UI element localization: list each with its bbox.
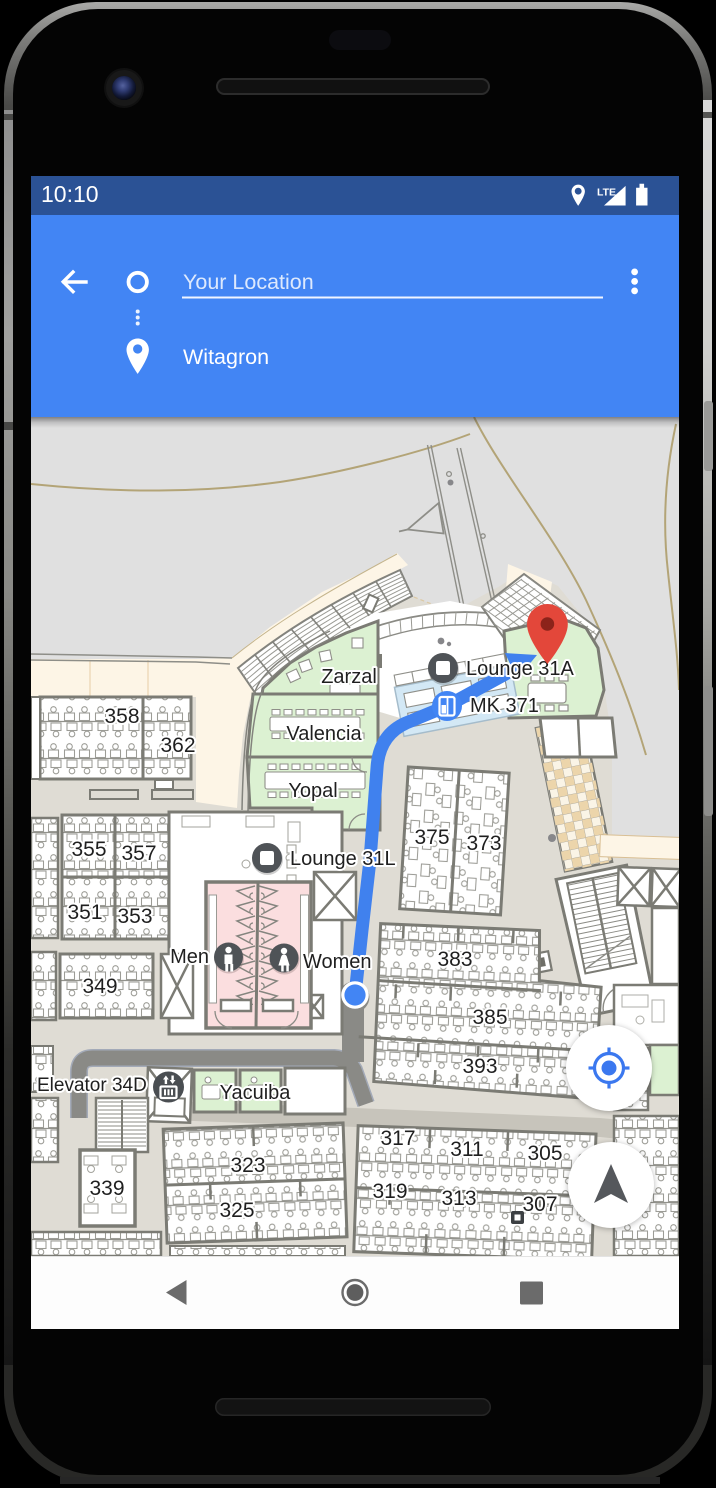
svg-text:311: 311 <box>450 1138 483 1161</box>
svg-text:323: 323 <box>230 1154 265 1177</box>
svg-text:Witagron: Witagron <box>183 345 269 369</box>
svg-text:319: 319 <box>372 1180 407 1203</box>
svg-text:355: 355 <box>71 838 106 861</box>
svg-text:383: 383 <box>437 948 472 971</box>
svg-text:362: 362 <box>160 734 195 757</box>
svg-text:305: 305 <box>527 1142 562 1165</box>
svg-text:Valencia: Valencia <box>286 723 362 745</box>
svg-text:385: 385 <box>472 1006 507 1029</box>
svg-text:349: 349 <box>82 975 117 998</box>
svg-text:Men: Men <box>170 946 209 968</box>
svg-text:313: 313 <box>441 1187 476 1210</box>
svg-text:Zarzal: Zarzal <box>321 666 377 688</box>
svg-text:373: 373 <box>466 832 501 855</box>
svg-text:Elevator 34D: Elevator 34D <box>37 1075 147 1096</box>
svg-text:Lounge 31L: Lounge 31L <box>290 848 396 870</box>
svg-text:Yopal: Yopal <box>288 780 337 802</box>
svg-text:351: 351 <box>67 901 102 924</box>
svg-text:307: 307 <box>522 1193 557 1216</box>
svg-text:358: 358 <box>104 705 139 728</box>
svg-text:375: 375 <box>414 826 449 849</box>
svg-text:Your Location: Your Location <box>183 270 314 294</box>
svg-text:Yacuiba: Yacuiba <box>220 1082 292 1104</box>
svg-text:357: 357 <box>121 842 156 865</box>
svg-text:317: 317 <box>380 1127 415 1150</box>
svg-text:Women: Women <box>303 951 372 973</box>
svg-text:Lounge 31A: Lounge 31A <box>466 658 575 680</box>
svg-text:325: 325 <box>219 1199 254 1222</box>
svg-text:339: 339 <box>89 1177 124 1200</box>
svg-text:LTE: LTE <box>597 187 616 199</box>
svg-text:MK 371: MK 371 <box>470 695 539 717</box>
svg-text:393: 393 <box>462 1055 497 1078</box>
svg-text:353: 353 <box>117 905 152 928</box>
